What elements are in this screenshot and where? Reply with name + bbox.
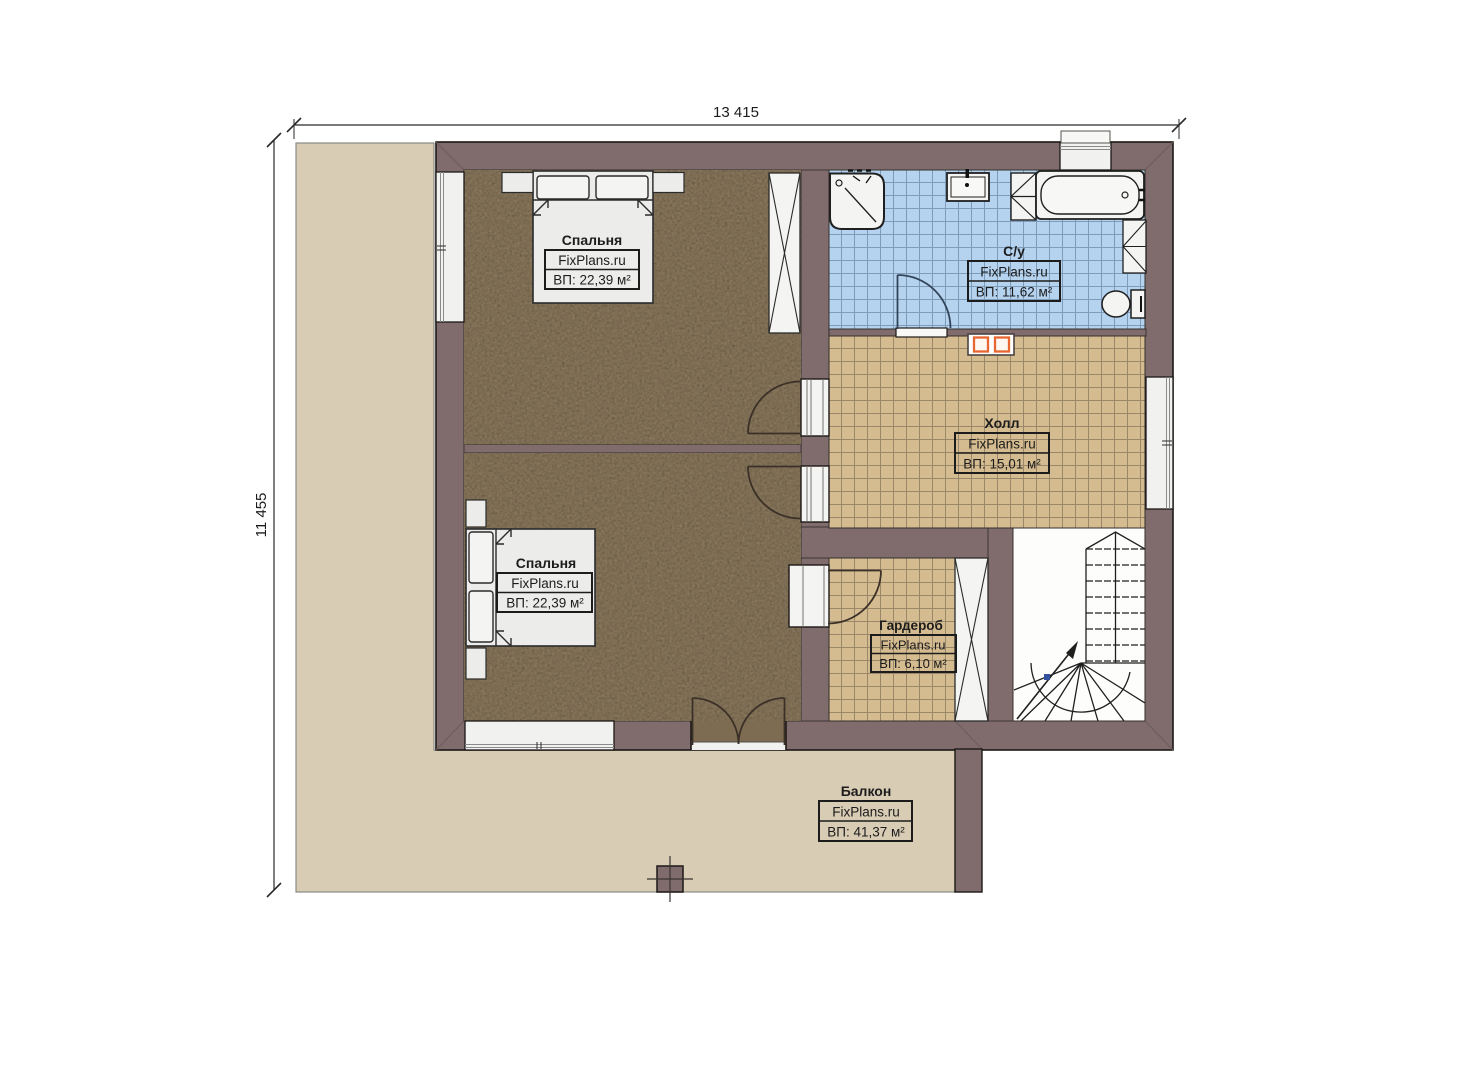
svg-text:Спальня: Спальня	[562, 232, 622, 248]
svg-text:ВП: 22,39 м²: ВП: 22,39 м²	[506, 596, 584, 611]
svg-text:ВП: 41,37 м²: ВП: 41,37 м²	[827, 825, 905, 840]
svg-text:11 455: 11 455	[253, 493, 270, 538]
svg-text:ВП: 11,62 м²: ВП: 11,62 м²	[976, 285, 1053, 300]
svg-text:Гардероб: Гардероб	[879, 618, 943, 633]
svg-text:ВП: 15,01 м²: ВП: 15,01 м²	[963, 457, 1041, 472]
svg-text:Спальня: Спальня	[516, 555, 576, 571]
svg-text:ВП: 22,39 м²: ВП: 22,39 м²	[553, 273, 631, 288]
svg-text:Балкон: Балкон	[841, 783, 892, 799]
svg-text:ВП: 6,10 м²: ВП: 6,10 м²	[879, 656, 947, 671]
svg-text:FixPlans.ru: FixPlans.ru	[511, 576, 579, 591]
svg-text:FixPlans.ru: FixPlans.ru	[558, 253, 626, 268]
svg-text:FixPlans.ru: FixPlans.ru	[968, 437, 1036, 452]
svg-text:Холл: Холл	[984, 415, 1019, 431]
svg-text:FixPlans.ru: FixPlans.ru	[880, 638, 945, 653]
svg-text:FixPlans.ru: FixPlans.ru	[832, 805, 900, 820]
svg-text:FixPlans.ru: FixPlans.ru	[980, 265, 1048, 280]
svg-text:13 415: 13 415	[713, 104, 759, 121]
svg-text:С/у: С/у	[1003, 243, 1025, 259]
